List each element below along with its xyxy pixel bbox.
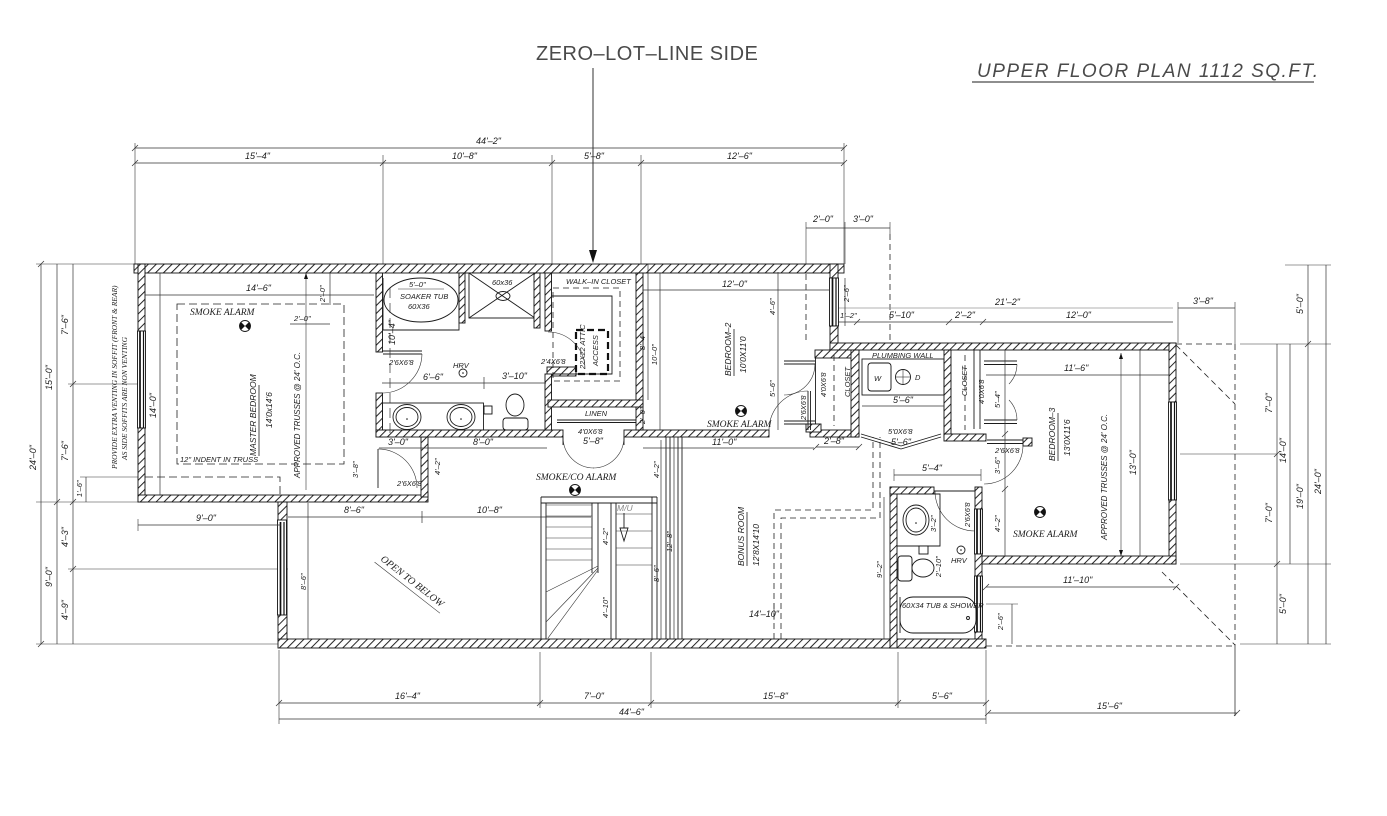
svg-text:24'–0": 24'–0" (28, 444, 38, 471)
svg-text:6'–6": 6'–6" (423, 372, 444, 382)
svg-text:AS SIDE SOFFITS ARE NON VENTIN: AS SIDE SOFFITS ARE NON VENTING (120, 336, 129, 461)
svg-text:12'–0": 12'–0" (722, 279, 748, 289)
svg-text:MASTER BEDROOM: MASTER BEDROOM (248, 373, 258, 456)
svg-text:10'–4": 10'–4" (387, 319, 397, 345)
svg-text:2'6X6'8: 2'6X6'8 (994, 446, 1020, 455)
svg-text:SMOKE ALARM: SMOKE ALARM (707, 420, 773, 430)
svg-text:15'–6": 15'–6" (1097, 701, 1123, 711)
svg-text:2'6X6'8: 2'6X6'8 (799, 395, 808, 421)
svg-text:10'–8": 10'–8" (477, 505, 503, 515)
svg-text:10'–8": 10'–8" (452, 151, 478, 161)
svg-text:24'–0": 24'–0" (1313, 468, 1323, 495)
svg-text:1'–6": 1'–6" (75, 480, 84, 497)
svg-text:CLOSET: CLOSET (960, 365, 969, 396)
svg-text:3'–2": 3'–2" (929, 515, 938, 532)
svg-text:3'–6": 3'–6" (993, 457, 1002, 474)
svg-text:9'–0": 9'–0" (196, 513, 217, 523)
svg-text:5'–8": 5'–8" (584, 151, 605, 161)
svg-text:PROVIDE EXTRA VENTING IN SOFFI: PROVIDE EXTRA VENTING IN SOFFIT (FRONT &… (110, 285, 119, 470)
svg-text:13'0X11'6: 13'0X11'6 (1062, 419, 1072, 456)
svg-text:W: W (874, 374, 882, 383)
svg-text:5'–0": 5'–0" (1295, 293, 1305, 314)
svg-text:5'–6": 5'–6" (768, 380, 777, 397)
svg-text:44'–2": 44'–2" (476, 136, 502, 146)
svg-text:PLUMBING WALL: PLUMBING WALL (872, 351, 934, 360)
svg-text:7'–6": 7'–6" (60, 314, 70, 335)
svg-text:CLOSET: CLOSET (843, 366, 852, 397)
svg-text:4'–6": 4'–6" (768, 298, 777, 315)
svg-text:21'–2": 21'–2" (994, 297, 1021, 307)
svg-text:13'–0": 13'–0" (1128, 449, 1138, 475)
svg-text:5'–8": 5'–8" (583, 436, 604, 446)
svg-text:9'–0": 9'–0" (44, 566, 54, 587)
svg-text:3'–0": 3'–0" (853, 214, 874, 224)
svg-text:7'–0": 7'–0" (1264, 502, 1274, 523)
svg-text:1'–2": 1'–2" (840, 311, 857, 320)
svg-text:8'–6": 8'–6" (344, 505, 365, 515)
svg-text:12'8X14'10: 12'8X14'10 (751, 524, 761, 566)
svg-text:SOAKER TUB: SOAKER TUB (400, 292, 448, 301)
svg-text:SMOKE/CO ALARM: SMOKE/CO ALARM (536, 473, 617, 483)
svg-text:10'0X11'0: 10'0X11'0 (738, 336, 748, 373)
svg-text:7'–0": 7'–0" (1264, 392, 1274, 413)
svg-text:10'–0": 10'–0" (650, 344, 659, 365)
svg-text:2'–0": 2'–0" (812, 214, 834, 224)
svg-text:2'–2": 2'–2" (954, 310, 976, 320)
svg-text:APPROVED TRUSSES @ 24' O.C.: APPROVED TRUSSES @ 24' O.C. (1100, 414, 1109, 541)
svg-text:5'–6": 5'–6" (893, 395, 914, 405)
svg-text:ZERO–LOT–LINE SIDE: ZERO–LOT–LINE SIDE (536, 43, 758, 65)
svg-text:2'6X6'8: 2'6X6'8 (388, 358, 414, 367)
svg-text:4'0X6'8: 4'0X6'8 (977, 379, 986, 404)
svg-text:11'–10": 11'–10" (1063, 575, 1093, 585)
svg-text:22X22 ATTIC: 22X22 ATTIC (578, 324, 587, 370)
svg-text:5'–0": 5'–0" (409, 280, 426, 289)
svg-text:12" INDENT IN TRUSS: 12" INDENT IN TRUSS (180, 455, 258, 464)
svg-text:15'–0": 15'–0" (44, 364, 54, 390)
svg-text:8'–6": 8'–6" (299, 573, 308, 590)
svg-text:2'–6": 2'–6" (842, 285, 851, 303)
svg-text:7'–0": 7'–0" (584, 691, 605, 701)
svg-text:9'–2": 9'–2" (875, 561, 884, 578)
svg-text:60X36: 60X36 (408, 302, 431, 311)
svg-text:5'–6": 5'–6" (932, 691, 953, 701)
svg-text:12'–6": 12'–6" (727, 151, 753, 161)
svg-text:4'0X6'8: 4'0X6'8 (578, 427, 603, 436)
svg-text:BONUS ROOM: BONUS ROOM (736, 506, 746, 566)
svg-text:16'–4": 16'–4" (395, 691, 421, 701)
svg-text:5'–4": 5'–4" (993, 391, 1002, 408)
svg-text:BEDROOM–3: BEDROOM–3 (1047, 407, 1057, 461)
svg-text:14'0x14'6: 14'0x14'6 (264, 392, 274, 428)
svg-text:15'–8": 15'–8" (763, 691, 789, 701)
svg-text:44'–6": 44'–6" (619, 707, 645, 717)
svg-text:2'–8": 2'–8" (823, 436, 845, 446)
svg-text:4'–2": 4'–2" (601, 528, 610, 545)
svg-text:ACCESS: ACCESS (591, 335, 600, 367)
svg-text:14'–0": 14'–0" (148, 392, 158, 418)
svg-text:2'6X6'8: 2'6X6'8 (396, 479, 422, 488)
svg-text:8'–4": 8'–4" (638, 333, 647, 350)
svg-text:5'–6": 5'–6" (891, 437, 912, 447)
svg-text:4'–2": 4'–2" (652, 461, 661, 478)
svg-text:14'–0": 14'–0" (1278, 437, 1288, 463)
svg-text:2'–0": 2'–0" (638, 407, 647, 425)
svg-text:11'–6": 11'–6" (1064, 363, 1089, 373)
svg-text:60x36: 60x36 (492, 278, 513, 287)
svg-text:4'0X6'8: 4'0X6'8 (819, 372, 828, 397)
svg-text:4'–9": 4'–9" (60, 599, 70, 620)
svg-text:LINEN: LINEN (585, 409, 608, 418)
svg-text:2'4X6'8: 2'4X6'8 (540, 357, 566, 366)
svg-text:5'–4": 5'–4" (922, 463, 943, 473)
svg-text:3'–8": 3'–8" (1193, 296, 1214, 306)
svg-text:UPPER FLOOR PLAN 1112 SQ.FT.: UPPER FLOOR PLAN 1112 SQ.FT. (977, 61, 1320, 82)
svg-text:12'–8": 12'–8" (665, 531, 674, 552)
svg-text:4'–2": 4'–2" (433, 458, 442, 475)
svg-text:14'–10": 14'–10" (749, 609, 780, 619)
svg-text:2'–6": 2'–6" (996, 613, 1005, 631)
svg-text:WALK–IN CLOSET: WALK–IN CLOSET (566, 277, 632, 286)
svg-text:3'–10": 3'–10" (502, 371, 528, 381)
svg-text:3'–0": 3'–0" (388, 437, 409, 447)
svg-text:4'–3": 4'–3" (60, 526, 70, 547)
svg-text:2'–10": 2'–10" (934, 556, 943, 578)
svg-text:7'–6": 7'–6" (60, 440, 70, 461)
svg-text:60X34 TUB & SHOWER: 60X34 TUB & SHOWER (902, 601, 984, 610)
svg-text:15'–4": 15'–4" (245, 151, 271, 161)
svg-text:D: D (915, 373, 921, 382)
svg-text:2'–0": 2'–0" (293, 314, 311, 323)
svg-text:5'–0": 5'–0" (1278, 593, 1288, 614)
svg-text:HRV: HRV (453, 361, 470, 370)
svg-text:4'–10": 4'–10" (601, 597, 610, 618)
svg-text:4'–2": 4'–2" (993, 515, 1002, 532)
svg-text:SMOKE ALARM: SMOKE ALARM (190, 308, 256, 318)
svg-text:19'–0": 19'–0" (1295, 483, 1305, 509)
svg-text:5'–10": 5'–10" (889, 310, 915, 320)
svg-text:HRV: HRV (951, 556, 968, 565)
svg-text:2'6X6'8: 2'6X6'8 (963, 502, 972, 528)
svg-text:M/U: M/U (617, 503, 633, 513)
svg-text:5'0X6'8: 5'0X6'8 (888, 427, 913, 436)
svg-text:8'–0": 8'–0" (473, 437, 494, 447)
svg-text:11'–0": 11'–0" (712, 437, 737, 447)
svg-text:8'–6": 8'–6" (652, 565, 661, 582)
svg-text:2'–0": 2'–0" (318, 285, 327, 303)
svg-text:14'–6": 14'–6" (246, 283, 272, 293)
svg-text:SMOKE ALARM: SMOKE ALARM (1013, 530, 1079, 540)
svg-text:12'–0": 12'–0" (1066, 310, 1092, 320)
svg-text:3'–8": 3'–8" (351, 461, 360, 478)
svg-text:APPROVED TRUSSES @ 24' O.C.: APPROVED TRUSSES @ 24' O.C. (293, 352, 302, 479)
svg-text:BEDROOM–2: BEDROOM–2 (723, 322, 733, 376)
